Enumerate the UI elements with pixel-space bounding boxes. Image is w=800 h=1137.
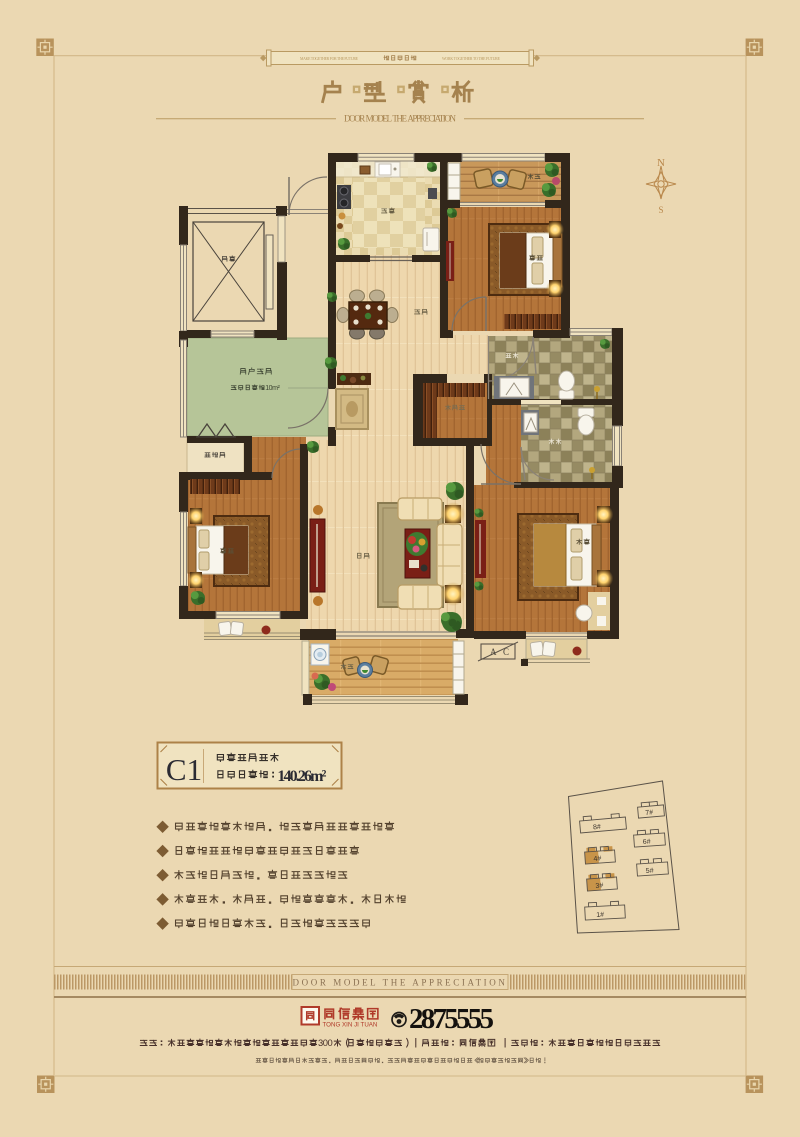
svg-text:A: A: [490, 647, 497, 657]
svg-text:1#: 1#: [596, 912, 604, 919]
svg-text:140.26m²: 140.26m²: [277, 768, 326, 785]
svg-text:N: N: [657, 157, 665, 169]
svg-text:S: S: [658, 205, 663, 215]
svg-text:MAKE TOGETHER FOR THE FUTURE: MAKE TOGETHER FOR THE FUTURE: [300, 57, 359, 61]
svg-text:C1: C1: [166, 752, 202, 787]
svg-text:3#: 3#: [595, 882, 603, 890]
svg-text:TONG XIN JI TUAN: TONG XIN JI TUAN: [323, 1022, 379, 1029]
svg-text:C: C: [503, 647, 509, 657]
svg-text:300: 300: [318, 1037, 333, 1048]
svg-text:10m²: 10m²: [265, 385, 280, 392]
svg-text:DOOR MODEL THE APPRECIATION: DOOR MODEL THE APPRECIATION: [344, 114, 457, 124]
svg-text:5#: 5#: [646, 867, 654, 875]
svg-text:WORK TOGETHER TO THE FUTURE: WORK TOGETHER TO THE FUTURE: [442, 57, 501, 61]
svg-text:7#: 7#: [645, 809, 653, 817]
svg-text:8#: 8#: [593, 824, 601, 832]
svg-text:2875555: 2875555: [409, 1003, 494, 1035]
svg-text:DOOR MODEL THE APPRECIATION: DOOR MODEL THE APPRECIATION: [293, 978, 508, 988]
svg-text:4#: 4#: [593, 855, 601, 863]
svg-text:6#: 6#: [643, 838, 651, 846]
